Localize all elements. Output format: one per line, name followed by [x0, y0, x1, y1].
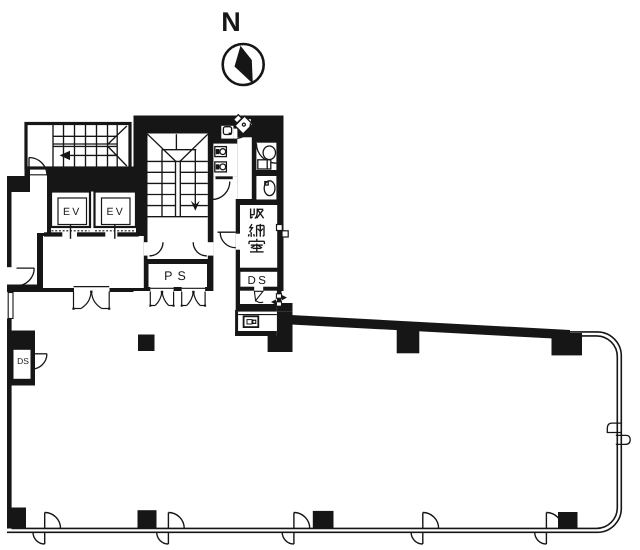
svg-text:PS: PS	[164, 269, 191, 283]
svg-text:DS: DS	[248, 275, 269, 287]
svg-text:N: N	[221, 7, 241, 37]
svg-text:EV: EV	[63, 206, 81, 218]
svg-text:DS: DS	[17, 356, 29, 366]
svg-text:EV: EV	[106, 206, 124, 218]
